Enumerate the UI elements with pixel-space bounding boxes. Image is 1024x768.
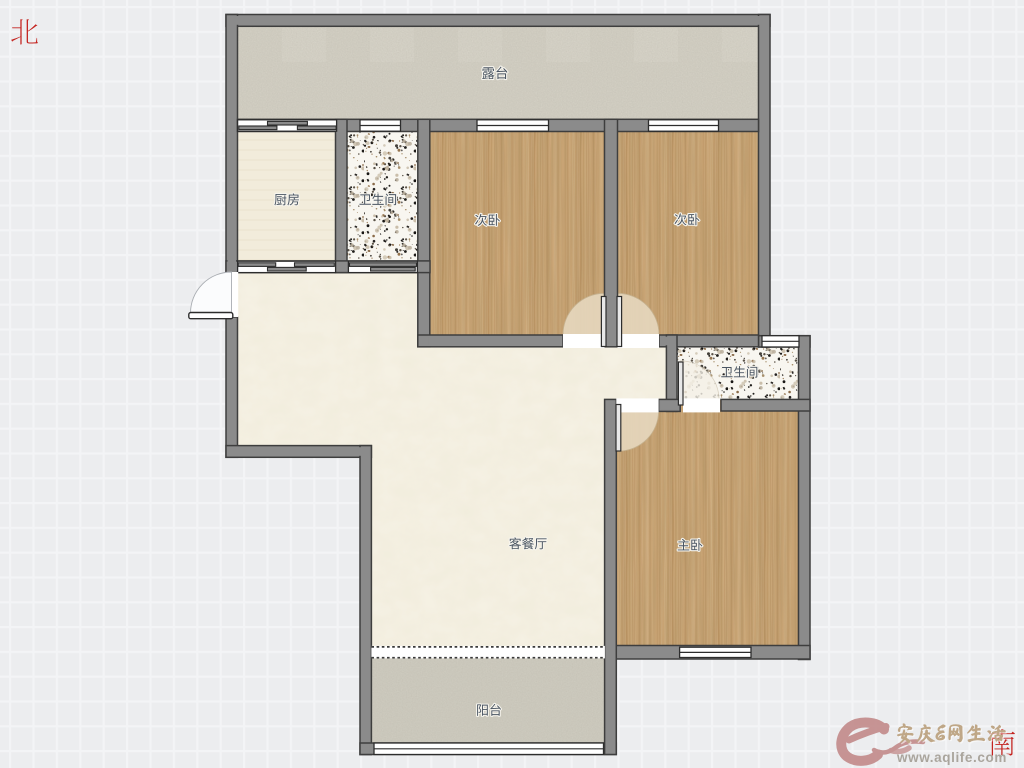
svg-text:www.aqlife.com: www.aqlife.com	[896, 750, 1007, 765]
